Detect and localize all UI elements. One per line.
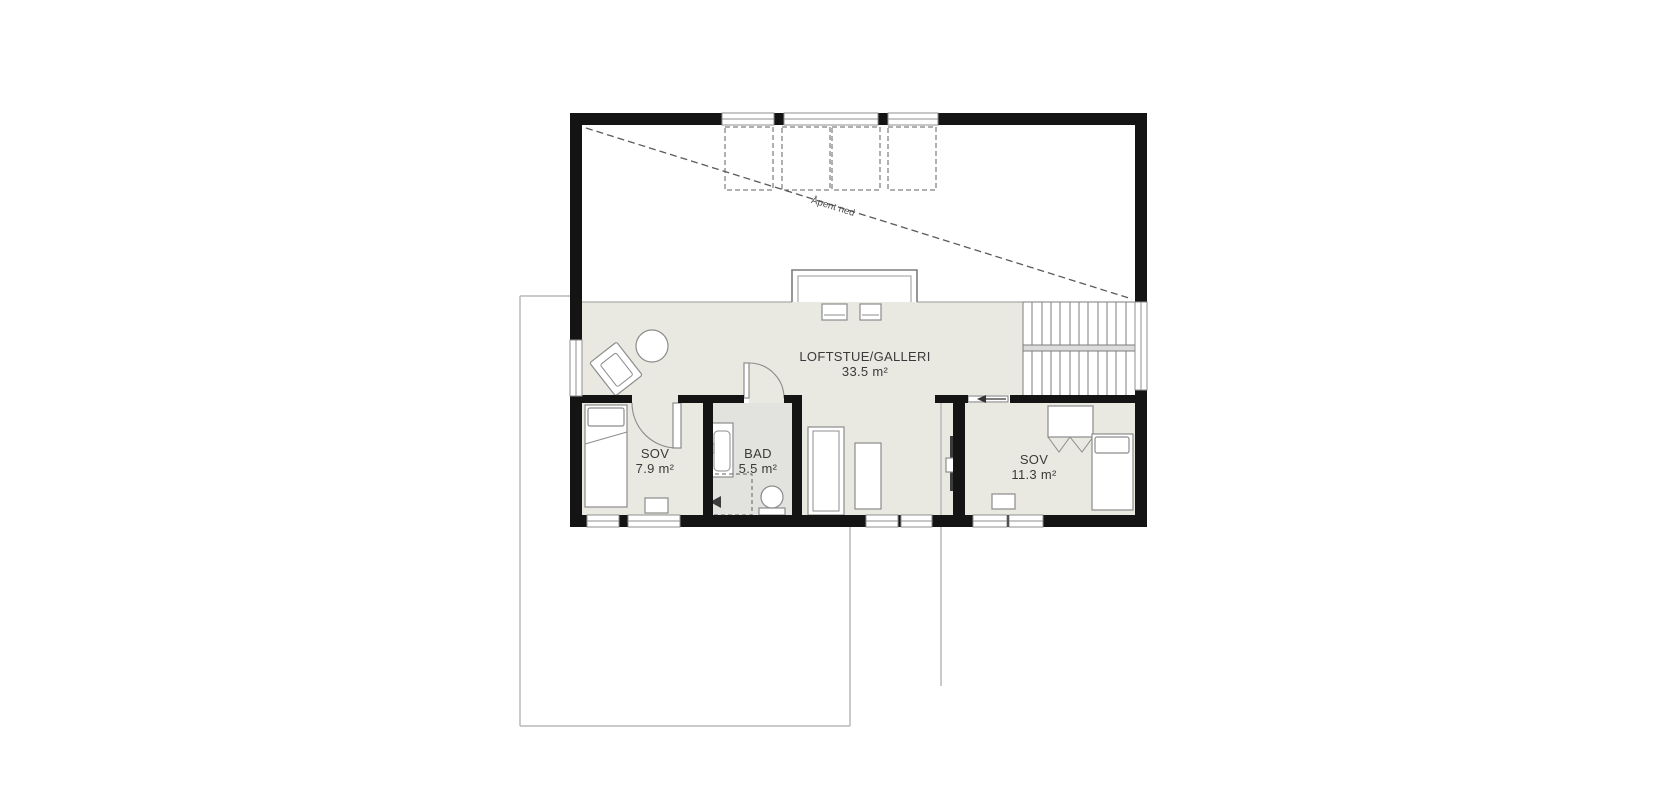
stool	[822, 304, 847, 320]
pillow	[1095, 437, 1129, 453]
toilet-tank	[759, 508, 785, 515]
door-leaf	[744, 363, 749, 398]
room-name: SOV	[636, 446, 675, 461]
nightstand	[645, 498, 668, 513]
room-label-bad: BAD 5.5 m²	[739, 446, 778, 476]
room-label-sov2: SOV 11.3 m²	[1011, 452, 1056, 482]
room-name: SOV	[1011, 452, 1056, 467]
pillow	[588, 408, 624, 426]
room-area: 11.3 m²	[1011, 467, 1056, 482]
coffee-table	[855, 443, 881, 509]
skylight	[782, 127, 830, 190]
staircase	[1023, 302, 1135, 395]
floor-plan-drawing	[0, 0, 1670, 800]
stair-landing	[1023, 345, 1135, 351]
gallery-railing	[792, 270, 917, 302]
skylight	[725, 127, 773, 190]
room-label-loftstue: LOFTSTUE/GALLERI 33.5 m²	[799, 349, 930, 379]
skylight	[832, 127, 880, 190]
nightstand	[992, 494, 1015, 509]
wardrobe	[1048, 406, 1093, 437]
door-leaf	[673, 403, 681, 448]
room-area: 5.5 m²	[739, 461, 778, 476]
room-area: 33.5 m²	[799, 364, 930, 379]
room-name: BAD	[739, 446, 778, 461]
stool	[860, 304, 881, 320]
room-label-sov1: SOV 7.9 m²	[636, 446, 675, 476]
round-side-table	[636, 330, 668, 362]
room-area: 7.9 m²	[636, 461, 675, 476]
skylight	[888, 127, 936, 190]
toilet-bowl	[761, 486, 783, 508]
room-name: LOFTSTUE/GALLERI	[799, 349, 930, 364]
floor-plan-canvas: Åpent ned LOFTSTUE/GALLERI 33.5 m² SOV 7…	[0, 0, 1670, 800]
